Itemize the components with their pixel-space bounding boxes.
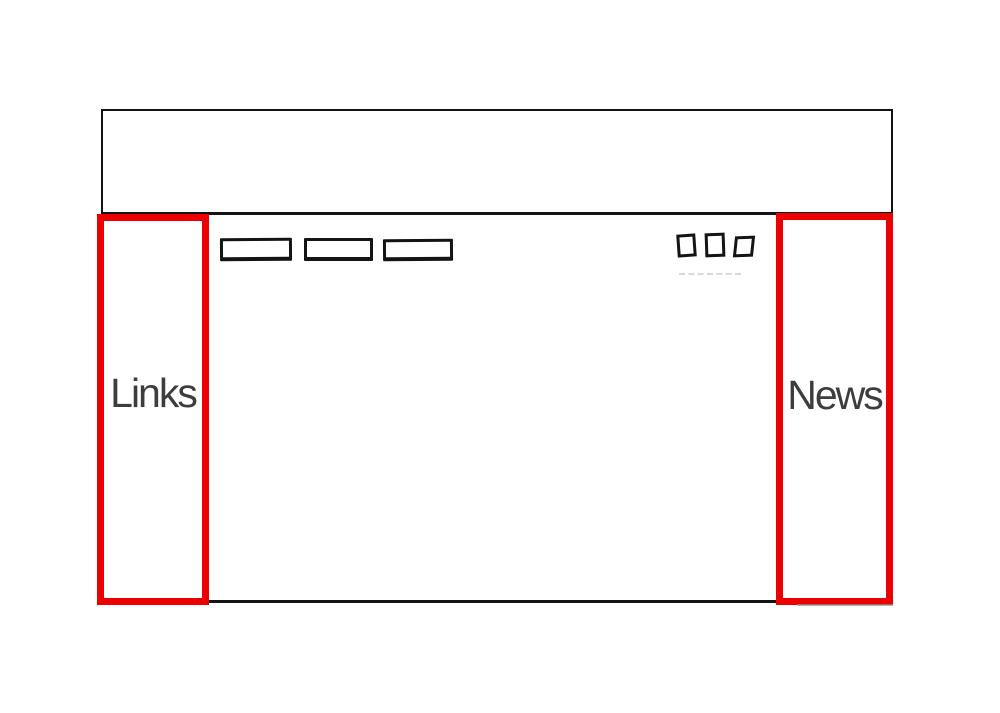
- control-square-icon-1: [676, 233, 697, 257]
- links-highlight-box: Links: [97, 214, 209, 605]
- links-label: Links: [104, 373, 202, 414]
- content-box: [103, 212, 892, 603]
- ink-bleed: [797, 604, 893, 606]
- header-box: [101, 109, 893, 214]
- nav-button-placeholder-3: [383, 239, 453, 262]
- nav-button-placeholder-2: [304, 238, 373, 261]
- wireframe-canvas: Links News: [0, 0, 1000, 713]
- news-highlight-box: News: [776, 213, 893, 605]
- news-label: News: [783, 375, 886, 416]
- control-square-icon-3: [733, 236, 755, 258]
- nav-button-placeholder-1: [220, 238, 292, 262]
- pencil-smudge: [679, 273, 741, 275]
- control-square-icon-2: [705, 233, 726, 258]
